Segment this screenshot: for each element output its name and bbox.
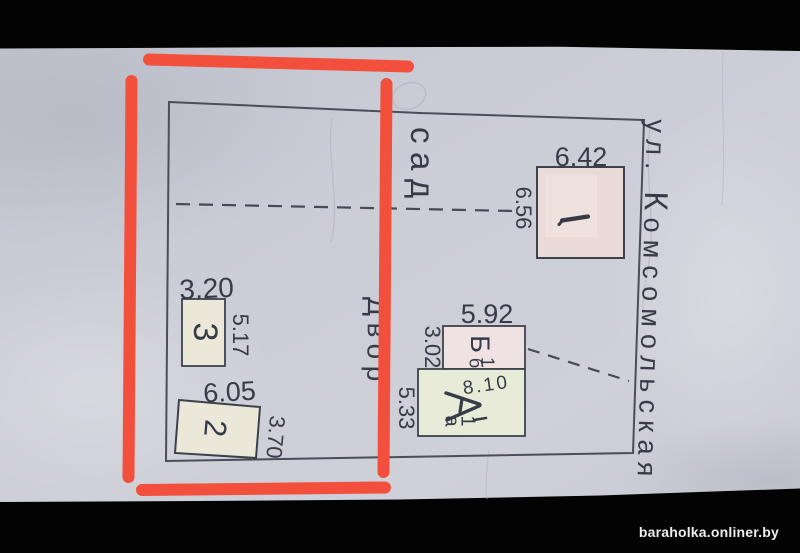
svg-text:Б: Б (465, 335, 495, 353)
svg-text:6.05: 6.05 (202, 376, 256, 409)
svg-text:5.17: 5.17 (228, 314, 253, 357)
svg-text:5.33: 5.33 (394, 387, 419, 430)
svg-text:3.02: 3.02 (420, 326, 445, 369)
svg-text:baraholka.onliner.by: baraholka.onliner.by (639, 524, 779, 540)
svg-text:3.20: 3.20 (179, 272, 235, 305)
svg-text:сад: сад (404, 127, 441, 207)
svg-text:3: 3 (186, 323, 224, 342)
svg-text:6.56: 6.56 (511, 187, 536, 230)
svg-text:5.92: 5.92 (461, 299, 514, 329)
svg-text:1: 1 (477, 357, 497, 367)
svg-text:6.42: 6.42 (555, 142, 608, 172)
svg-text:2: 2 (197, 418, 233, 438)
svg-text:3.70: 3.70 (261, 415, 290, 460)
